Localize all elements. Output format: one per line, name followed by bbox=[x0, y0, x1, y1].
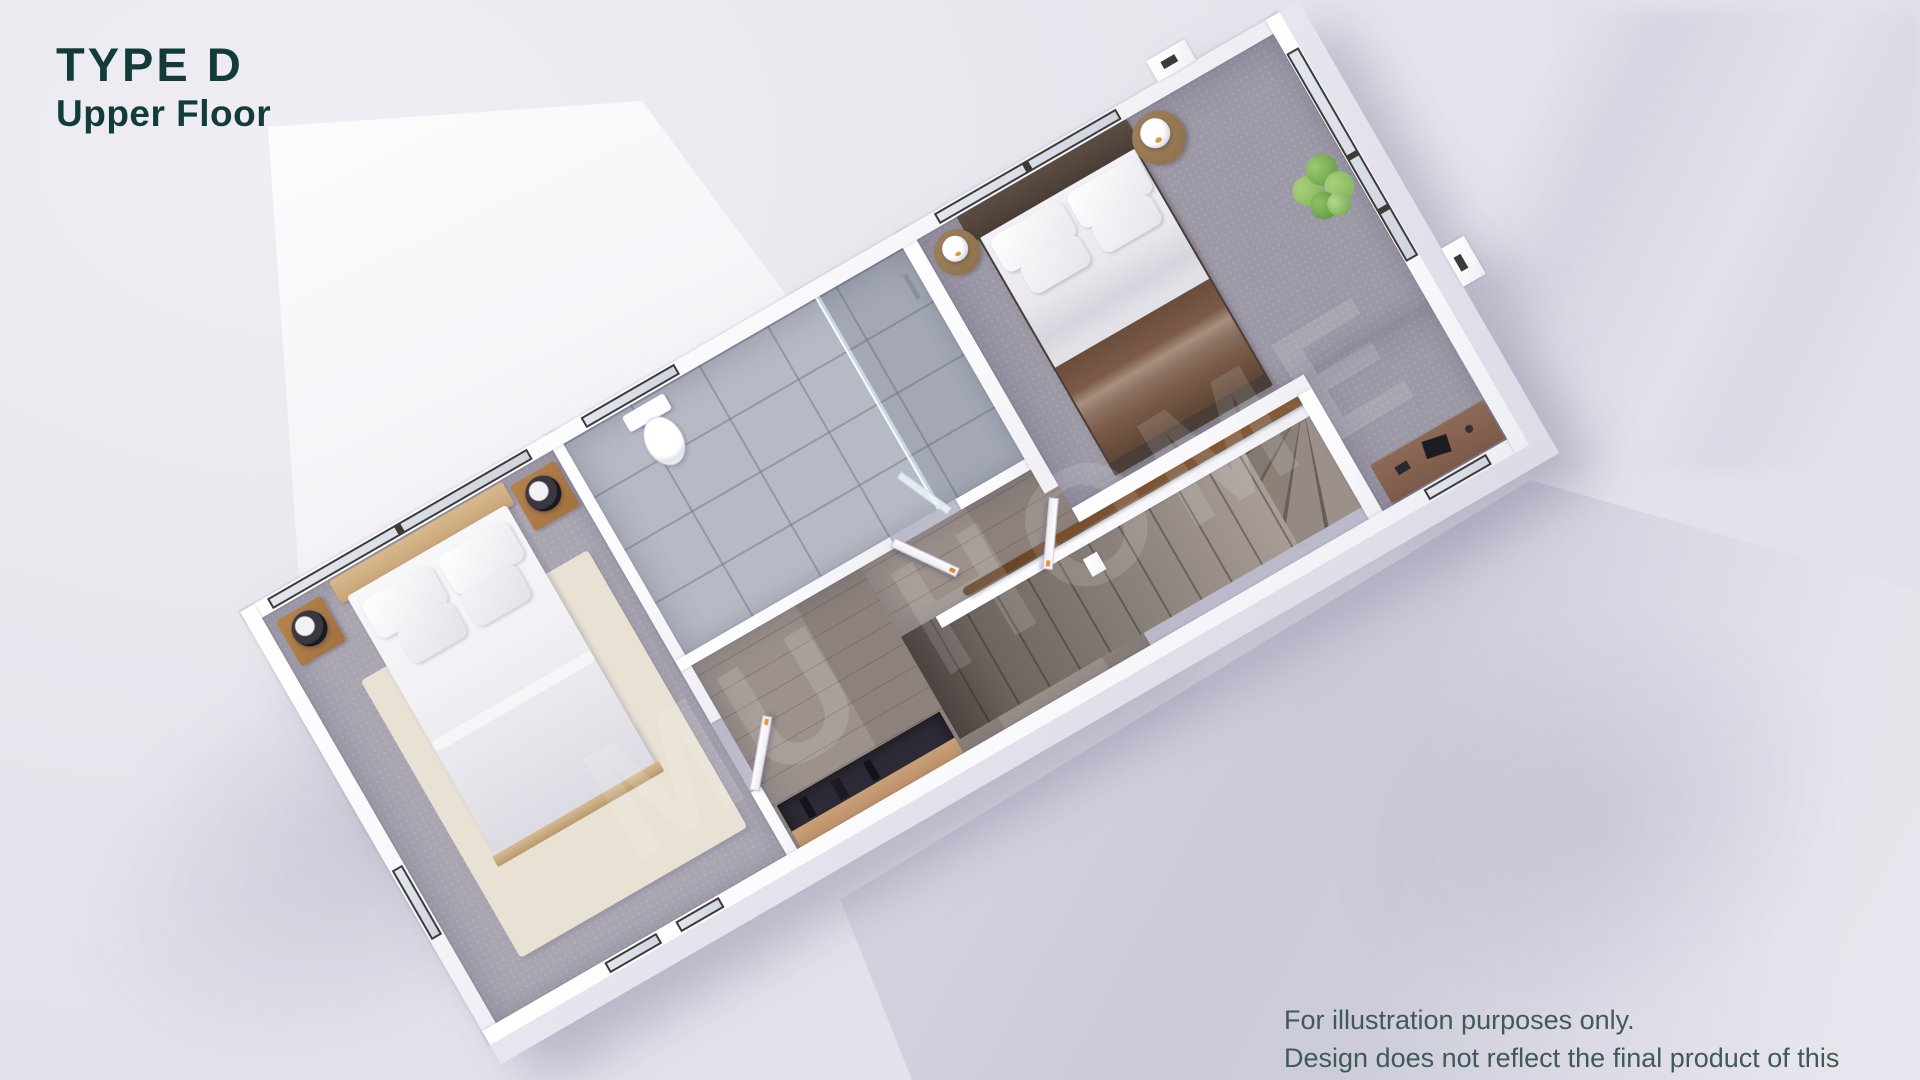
page-title: TYPE D bbox=[56, 40, 271, 89]
scene: MU HOME TYPE D Upper Floor For illustrat… bbox=[0, 0, 1920, 1080]
disclaimer: For illustration purposes only. Design d… bbox=[1284, 1002, 1920, 1080]
hanging-clothes bbox=[830, 777, 850, 801]
hanging-clothes bbox=[799, 796, 817, 819]
disclaimer-line-1: For illustration purposes only. bbox=[1284, 1002, 1920, 1040]
page-subtitle: Upper Floor bbox=[56, 93, 271, 135]
plan-header: TYPE D Upper Floor bbox=[56, 40, 271, 135]
disclaimer-line-2: Design does not reflect the final produc… bbox=[1284, 1040, 1920, 1080]
hanging-clothes bbox=[863, 759, 881, 782]
